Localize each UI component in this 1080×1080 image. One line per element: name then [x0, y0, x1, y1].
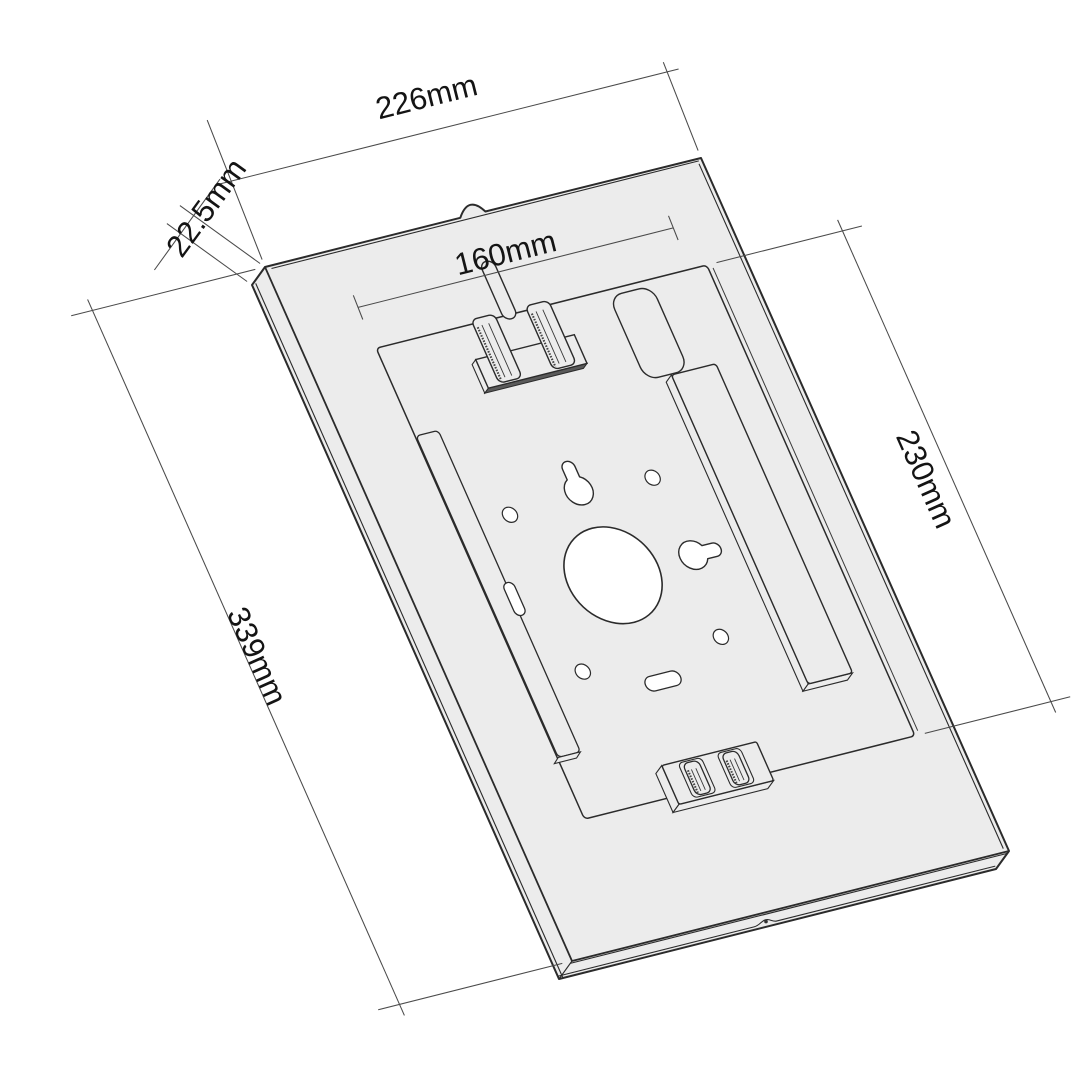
dimension-label-depth: 22.5mm	[159, 152, 253, 263]
lock-notch-dot	[764, 920, 768, 924]
extension-line	[71, 269, 255, 315]
drawing-canvas: 226mm 22.5mm 160mm 230mm 339	[0, 0, 1080, 1080]
extension-line	[663, 62, 698, 150]
technical-drawing: 226mm 22.5mm 160mm 230mm 339	[0, 0, 1080, 1080]
dimension-depth: 22.5mm	[154, 152, 260, 281]
dimension-label-outer-height: 339mm	[220, 602, 294, 711]
dimension-label-outer-width: 226mm	[372, 67, 481, 126]
extension-line	[378, 963, 562, 1009]
